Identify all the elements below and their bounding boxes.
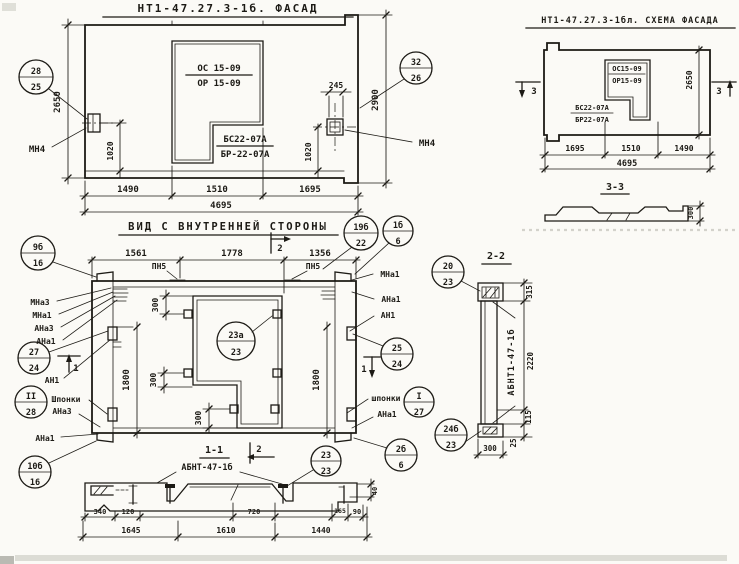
callout-bottom: 25 [31, 83, 41, 93]
dim-text: 300 [687, 207, 695, 220]
scan-artifact [2, 3, 16, 11]
callout-bottom: 23 [321, 467, 331, 477]
anchor-label-ana3: АНа3 [34, 324, 53, 333]
dim-300-2-2: 300 [474, 439, 507, 458]
key-shponka [108, 327, 117, 340]
callout-top: 27 [29, 348, 39, 358]
dim-text: 1510 [621, 144, 640, 153]
dim-text: 300 [194, 411, 203, 426]
dim-40: 40 [350, 479, 379, 501]
leader-line [167, 271, 185, 280]
dim-text: 300 [483, 444, 497, 453]
dim-245: 245 [321, 81, 351, 117]
leader-line [49, 441, 96, 463]
anchor-label-ana1: АНа1 [381, 295, 400, 304]
anchor-label-an1: АН1 [45, 376, 60, 385]
callout-1b-6: 1б 6 [383, 216, 413, 247]
dim-text: 720 [248, 508, 261, 516]
key-shponka [108, 408, 117, 421]
leader-line [350, 316, 374, 331]
callout-top: 9б [33, 242, 43, 253]
window-mark: ОС15-09 [612, 65, 642, 73]
plate-label-mn4-right: МН4 [419, 139, 436, 149]
window-mark: ОС 15-09 [197, 64, 240, 74]
dim-text: 245 [329, 81, 344, 90]
scheme-panel-outline [544, 43, 710, 141]
cut-label: 2 [256, 445, 261, 455]
dim-text: 2650 [685, 70, 694, 89]
section-1-1: 1-1 2 АБНТ-47-1б [78, 443, 379, 541]
sill-mark: БР22-07А [575, 116, 610, 124]
cut-mark-1-left: 1 [58, 354, 80, 374]
callout-bottom: 16 [33, 259, 43, 269]
anchor-label-mna1: МНа1 [32, 311, 51, 320]
channel-detail [91, 485, 137, 504]
callout-top: 32 [411, 58, 421, 68]
scan-artifact [15, 555, 727, 561]
dim-text: 25 [509, 438, 518, 447]
key-shponka [347, 327, 356, 340]
callout-bottom: 22 [356, 239, 366, 249]
callout-bottom: 6 [398, 461, 403, 471]
anchor-label-mna3: МНа3 [30, 298, 49, 307]
dim-text: 300 [149, 373, 158, 388]
dim-text: 4695 [617, 159, 637, 169]
callout-bottom: 6 [395, 237, 400, 247]
leader-line [353, 334, 383, 346]
dim-1800-right: 1800 [312, 322, 330, 438]
callout-19b-22: 19б 22 [344, 216, 378, 250]
dim-2650-scheme: 2650 [685, 46, 710, 139]
anchor-label-mna1: МНа1 [380, 270, 399, 279]
leader-line [79, 414, 100, 427]
cut-label: 3 [716, 87, 721, 97]
callout-top: 23 [321, 451, 331, 461]
facade-view: НТ1-47.27.3-1б. ФАСАД ОС 15-09 ОР 15-09 … [19, 2, 436, 215]
dim-1020-right: 1020 [304, 124, 321, 178]
profile-inner-edge [190, 485, 270, 500]
window-anchor-squares [184, 310, 281, 413]
dim-text: 165 [334, 507, 346, 515]
leader-line [352, 274, 373, 280]
cut-mark-1-right: 1 [361, 357, 380, 378]
cut-mark-3-left: 3 [516, 82, 540, 98]
section-3-3: 3-3 300 [545, 182, 704, 226]
anchor-label-ana3: АНа3 [52, 407, 71, 416]
shponki-label-right: шпонки [372, 394, 401, 403]
pn5-label-left: ПН5 [152, 262, 167, 271]
dim-row-1-1-top: 340 120 720 165 90 [81, 503, 368, 521]
section-title: 2-2 [487, 251, 505, 262]
section-title: 3-3 [606, 182, 624, 193]
scheme-title: НТ1-47.27.3-1бл. СХЕМА ФАСАДА [541, 15, 718, 26]
callout-bottom: 16 [30, 478, 40, 488]
window-mark: ОР 15-09 [197, 79, 240, 89]
dim-text: 1510 [206, 185, 228, 195]
leader-line [64, 340, 110, 378]
profile-detail [607, 213, 630, 220]
leader-line [354, 438, 387, 448]
callout-I-27: I 27 [404, 387, 434, 418]
scan-artifact [0, 556, 14, 564]
section11-label: АБНТ-47-1б [181, 462, 232, 473]
callout-II-28: II 28 [15, 386, 47, 418]
callout-bottom: 23 [443, 278, 453, 288]
dim-1020-left: 1020 [101, 120, 126, 178]
dim-text: 340 [94, 508, 107, 516]
callout-bottom: 27 [414, 408, 424, 418]
callout-24b-23: 24б 23 [435, 419, 481, 451]
callout-2b-6: 2б 6 [354, 438, 417, 471]
drawing-sheet: НТ1-47.27.3-1б. ФАСАД ОС 15-09 ОР 15-09 … [0, 0, 739, 564]
callout-23a-23: 23а 23 [217, 316, 272, 360]
dim-text: 4695 [210, 201, 232, 211]
sill-mark: БР-22-07А [221, 150, 270, 160]
callout-bottom: 24 [29, 364, 39, 374]
dim-text: 1561 [125, 249, 147, 259]
dim-1800-left: 1800 [115, 322, 140, 438]
cut-label: 1 [361, 365, 366, 375]
sill-mark: БС22-07А [575, 104, 610, 112]
dim-text: 90 [353, 508, 361, 516]
callout-top: 1б [393, 220, 403, 231]
dim-300-a: 300 [151, 290, 192, 320]
callout-top: 20 [443, 262, 453, 272]
cut-label: 2 [277, 244, 282, 254]
corner-anchor-details [113, 289, 335, 347]
sill-mark: БС22-07А [223, 135, 267, 145]
facade-title: НТ1-47.27.3-1б. ФАСАД [137, 2, 318, 15]
pn5-label-right: ПН5 [306, 262, 321, 271]
dim-text: 1440 [311, 526, 330, 535]
dim-text: 1800 [312, 369, 322, 391]
dim-text: 120 [122, 508, 135, 516]
leader-line [345, 130, 412, 142]
callout-bottom: 28 [26, 408, 36, 418]
dim-text: 300 [151, 298, 160, 313]
anchor-label-ana1: АНа1 [377, 410, 396, 419]
dim-text: 1610 [216, 526, 235, 535]
dim-text: 1020 [106, 141, 115, 160]
inner-view: ВИД С ВНУТРЕННЕЙ СТОРОНЫ 1561 1778 1356 … [15, 216, 434, 488]
dim-text: 115 [524, 410, 533, 424]
leader-line [461, 281, 480, 291]
callout-bottom: 24 [392, 360, 402, 370]
anchor-label-ana1: АНа1 [36, 337, 55, 346]
dim-2650: 2650 [53, 19, 85, 184]
leader-line [53, 262, 96, 277]
dim-text: 1356 [309, 249, 331, 259]
leader-line [252, 316, 272, 332]
dim-row-inner-top: 1561 1778 1356 [88, 249, 360, 293]
callout-bottom: 23 [231, 348, 241, 358]
dim-text: 1695 [565, 144, 584, 153]
leader-line [52, 128, 86, 147]
callout-top: 10б [27, 461, 42, 472]
cut-label: 1 [73, 364, 78, 374]
callout-bottom: 26 [411, 74, 421, 84]
panel-drawing: НТ1-47.27.3-1б. ФАСАД ОС 15-09 ОР 15-09 … [0, 0, 739, 564]
cut-mark-2-top: 2 [271, 233, 291, 254]
callout-top: 24б [443, 424, 458, 435]
dim-text: 1695 [299, 185, 321, 195]
hatch [483, 288, 498, 298]
inner-panel-outline [92, 281, 356, 433]
leader-line [360, 79, 404, 108]
dim-text: 1490 [117, 185, 139, 195]
dim-text: 1020 [304, 142, 313, 161]
callout-top: 28 [31, 67, 41, 77]
leader-line [347, 399, 368, 413]
dim-text: 1778 [221, 249, 243, 259]
section-title: 1-1 [205, 445, 223, 456]
leader-line [285, 271, 307, 280]
section-3-3-profile [545, 206, 688, 221]
dim-text: 2220 [526, 351, 535, 370]
inner-panel-tabs [97, 272, 351, 442]
section-2-2: 2-2 АБНТ1-47-1б 315 2220 115 25 300 20 [432, 251, 535, 458]
callout-9b-16: 9б 16 [21, 236, 96, 277]
callout-top: 19б [353, 222, 368, 233]
dim-text: 2650 [53, 91, 63, 113]
cut-mark-2-bottom: 2 [247, 443, 274, 463]
scheme-view: НТ1-47.27.3-1бл. СХЕМА ФАСАДА ОС15-09 ОР… [516, 15, 736, 226]
hatch [484, 427, 497, 434]
dim-text: 315 [525, 285, 534, 299]
callout-top: 2б [396, 444, 406, 455]
dim-row-total: 4695 [80, 201, 363, 215]
cut-label: 3 [531, 87, 536, 97]
section22-bar [481, 301, 497, 424]
dim-row-total-scheme: 4695 [540, 159, 715, 172]
section22-label: АБНТ1-47-1б [506, 328, 517, 395]
leader-line [61, 434, 98, 437]
dim-text: 2900 [371, 89, 381, 111]
callout-top: II [26, 392, 36, 402]
callout-23-23: 23 23 [287, 446, 341, 486]
callout-bottom: 23 [446, 441, 456, 451]
cut-mark-3-right: 3 [712, 80, 736, 97]
anchor-label-an1: АН1 [381, 311, 396, 320]
callout-top: I [416, 392, 421, 402]
dim-text: 40 [371, 487, 379, 495]
leader-line [157, 472, 282, 484]
callout-top: 25 [392, 344, 402, 354]
callout-top: 23а [228, 331, 243, 341]
inner-title: ВИД С ВНУТРЕННЕЙ СТОРОНЫ [128, 220, 328, 233]
inner-panel-edges [113, 281, 335, 433]
dim-text: 1800 [122, 369, 132, 391]
dim-text: 1645 [121, 526, 140, 535]
shponki-label-left: Шпонки [52, 395, 81, 404]
section22-bottom-block [478, 424, 503, 437]
dim-300-b: 300 [149, 367, 192, 393]
dim-2900: 2900 [358, 10, 392, 188]
dim-300-section33: 300 [687, 201, 704, 226]
callout-20-23: 20 23 [432, 256, 480, 291]
plate-label-mn4-left: МН4 [29, 145, 46, 155]
window-mark: ОР15-09 [612, 77, 642, 85]
dim-text: 1490 [674, 144, 693, 153]
callout-10b-16: 10б 16 [19, 441, 96, 488]
anchor-label-ana1: АНа1 [35, 434, 54, 443]
